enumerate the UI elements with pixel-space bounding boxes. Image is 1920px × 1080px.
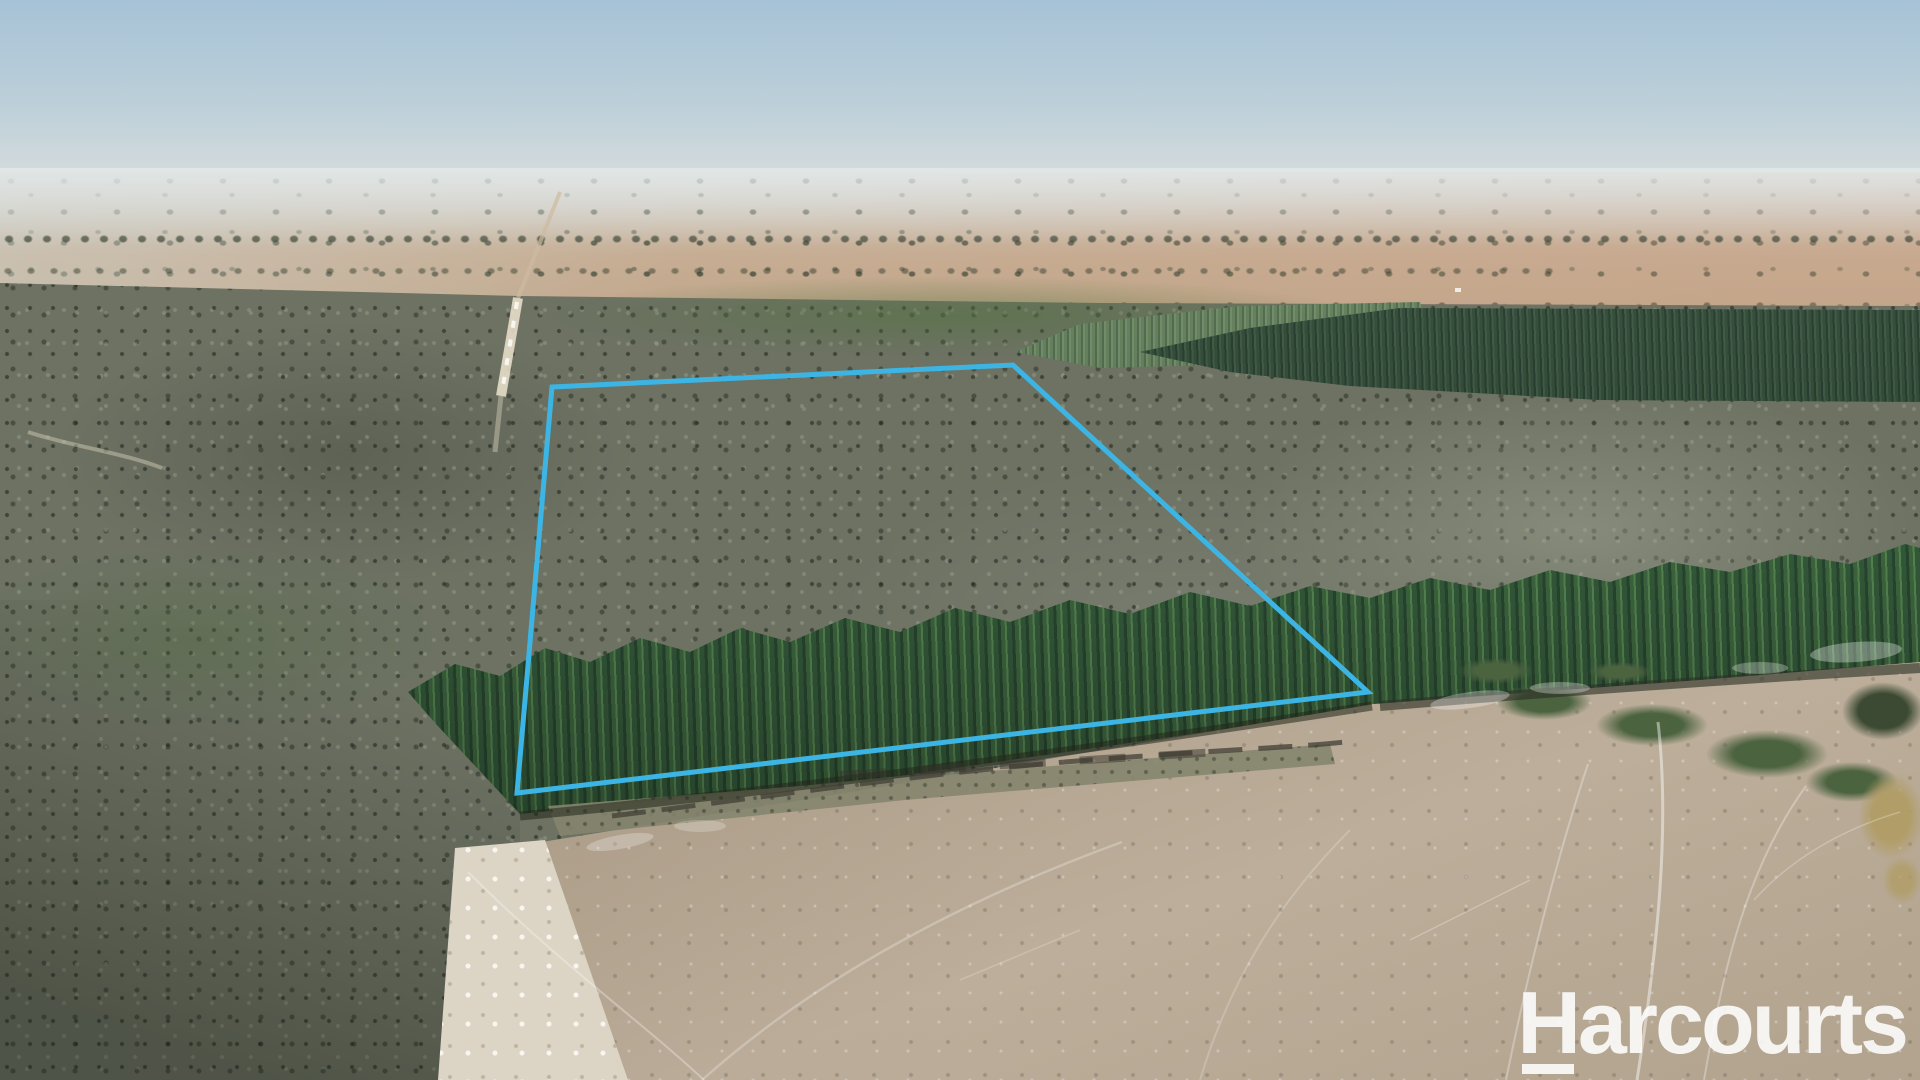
watermark-text: Harcourts <box>1517 973 1906 1072</box>
photo-annotations <box>0 0 1920 1080</box>
erosion-line <box>612 742 1345 816</box>
chalky-patches <box>585 639 1902 855</box>
forest-clearing-squiggle <box>28 432 162 468</box>
watermark-underline <box>1522 1064 1574 1074</box>
farm-building <box>1455 288 1461 292</box>
forest-track-faint <box>495 396 501 452</box>
aerial-photo: Harcourts <box>0 0 1920 1080</box>
pine-base-shadow-left <box>520 706 1372 816</box>
watermark: Harcourts <box>1517 983 1906 1078</box>
farm-track-distant <box>518 192 560 298</box>
